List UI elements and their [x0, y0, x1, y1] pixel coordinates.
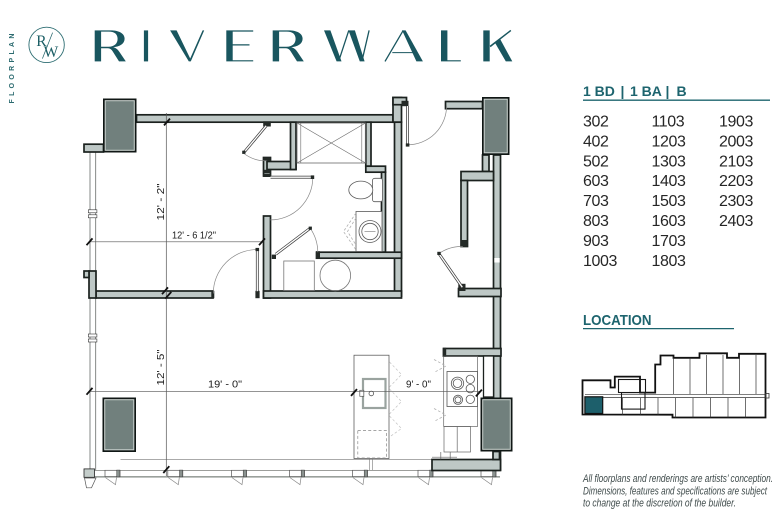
svg-text:19' - 0": 19' - 0"	[208, 380, 242, 391]
svg-text:LOCATION: LOCATION	[583, 312, 652, 329]
svg-text:1903 2003 2103 2203 2303 2403: 1903 2003 2103 2203 2303 2403	[719, 114, 757, 231]
svg-text:W: W	[44, 44, 59, 61]
svg-text:9' - 0": 9' - 0"	[406, 380, 431, 391]
svg-text:302 402 502 603 703 803 903 10: 302 402 502 603 703 803 903 1003	[583, 114, 617, 270]
svg-text:All floorplans and renderings: All floorplans and renderings are artist…	[582, 473, 773, 485]
svg-text:12' - 2": 12' - 2"	[156, 183, 167, 220]
svg-text:1 BD|1 BA|B: 1 BD|1 BA|B	[583, 83, 687, 99]
svg-text:Dimensions, features and speci: Dimensions, features and specifications …	[583, 485, 768, 497]
svg-text:to change at the discretion of: to change at the discretion of the build…	[583, 498, 736, 510]
svg-text:FLOORPLAN: FLOORPLAN	[9, 30, 16, 103]
svg-text:12' - 6 1/2": 12' - 6 1/2"	[172, 231, 216, 242]
svg-text:12' - 5": 12' - 5"	[156, 349, 167, 385]
svg-text:1103 1203 1303 1403 1503 1603: 1103 1203 1303 1403 1503 1603 1703 1803	[652, 114, 690, 270]
